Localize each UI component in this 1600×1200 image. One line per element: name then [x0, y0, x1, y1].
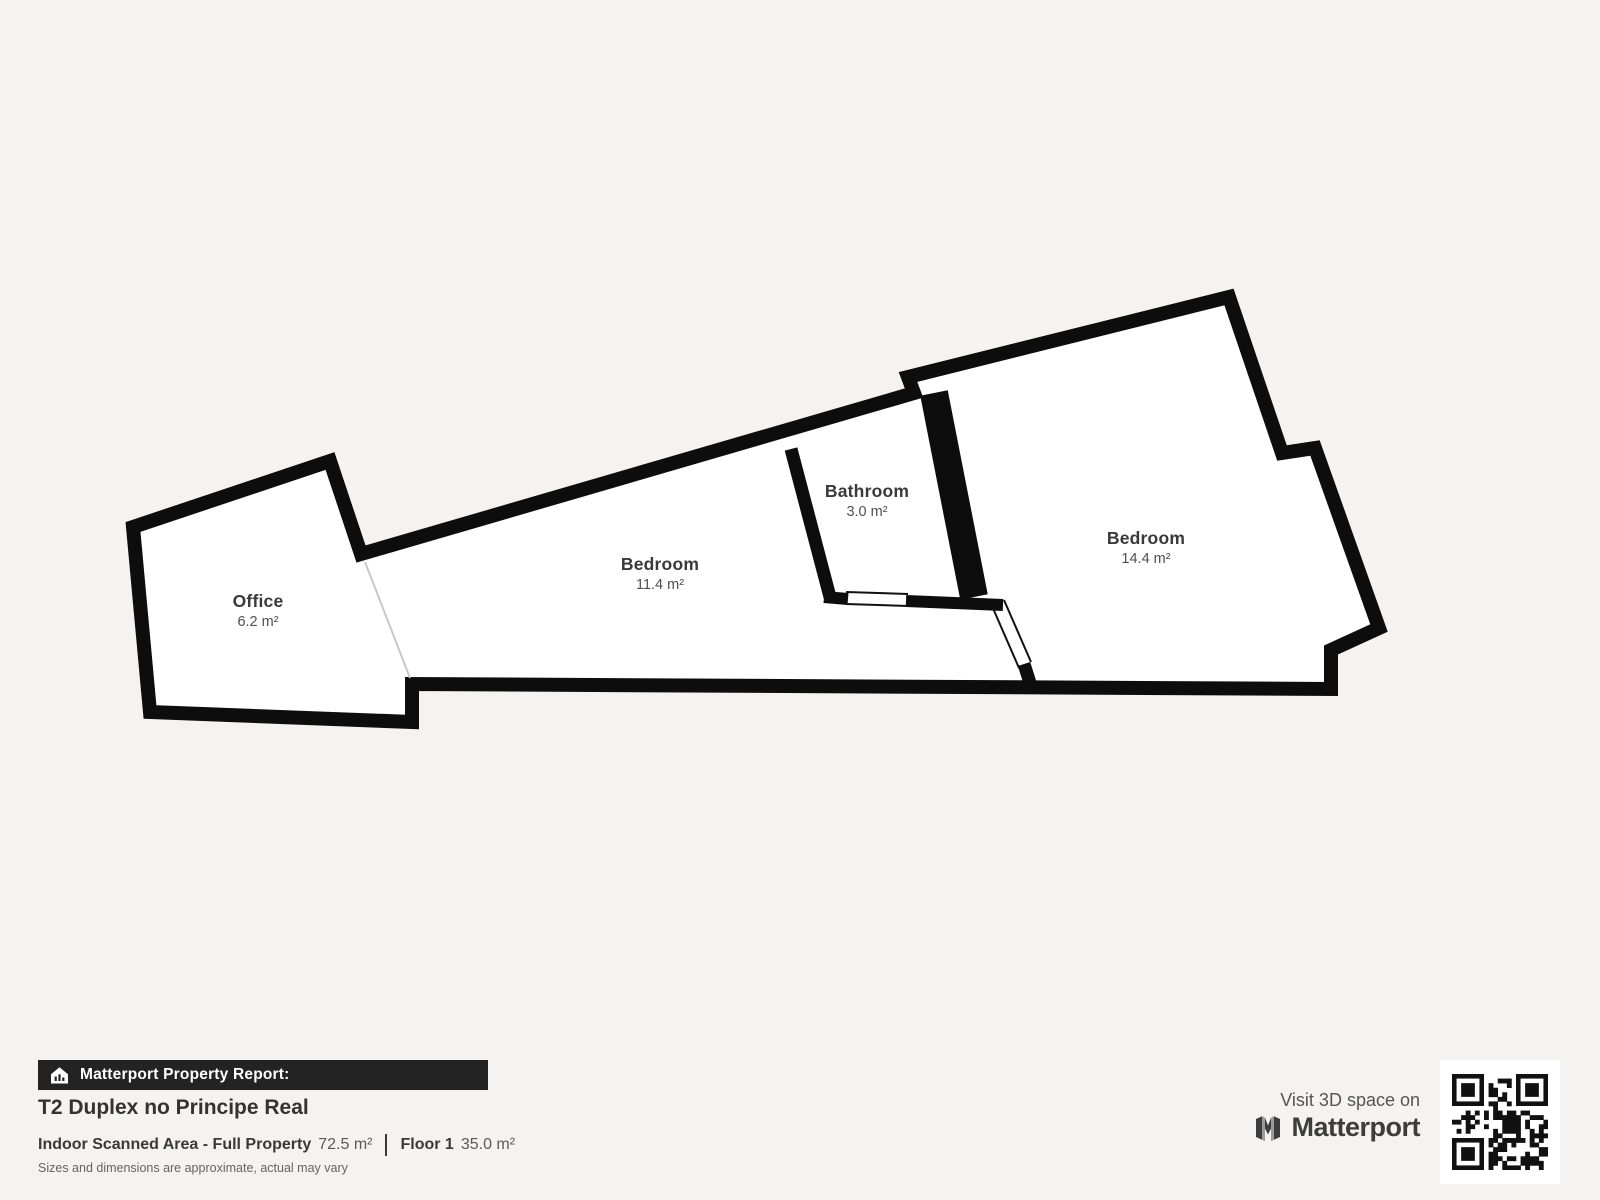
bathroom-bottom-wall-left: [824, 597, 848, 599]
matterport-floorplan-report: { "floorplan": { "rooms": [ { "name": "O…: [0, 0, 1600, 1200]
property-title: T2 Duplex no Principe Real: [38, 1096, 309, 1120]
room-area: 6.2 m²: [233, 614, 284, 631]
room-name: Bathroom: [825, 481, 909, 501]
stats-divider: [385, 1134, 387, 1156]
report-header-bar: Matterport Property Report:: [38, 1060, 488, 1090]
scanned-area-label: Indoor Scanned Area - Full Property: [38, 1136, 311, 1154]
room-name: Bedroom: [621, 554, 699, 574]
floor-label: Floor 1: [400, 1136, 453, 1154]
disclaimer-text: Sizes and dimensions are approximate, ac…: [38, 1161, 348, 1175]
room-label-office: Office 6.2 m²: [233, 591, 284, 631]
room-name: Bedroom: [1107, 528, 1185, 548]
visit-3d-space-text: Visit 3D space on: [1220, 1090, 1420, 1111]
bathroom-bottom-wall-right: [906, 601, 1003, 605]
area-stats-line: Indoor Scanned Area - Full Property 72.5…: [38, 1134, 515, 1156]
scanned-area-value: 72.5 m²: [318, 1136, 372, 1154]
qr-code-pattern: [1452, 1074, 1548, 1170]
room-name: Office: [233, 591, 284, 611]
matterport-wordmark: Matterport: [1292, 1112, 1421, 1143]
room-label-bedroom-2: Bedroom 14.4 m²: [1107, 528, 1185, 568]
matterport-logo-icon: [1253, 1113, 1283, 1143]
report-bar-label: Matterport Property Report:: [80, 1066, 290, 1084]
room-area: 11.4 m²: [621, 577, 699, 594]
room-label-bedroom-1: Bedroom 11.4 m²: [621, 554, 699, 594]
bedroom-divider-wall: [1024, 664, 1031, 686]
matterport-brand: Matterport: [1180, 1112, 1420, 1143]
room-area: 3.0 m²: [825, 504, 909, 521]
floor-value: 35.0 m²: [461, 1136, 515, 1154]
qr-code: [1440, 1060, 1560, 1184]
building-outline: [133, 297, 1379, 722]
house-report-icon: [50, 1066, 69, 1085]
room-label-bathroom: Bathroom 3.0 m²: [825, 481, 909, 521]
room-area: 14.4 m²: [1107, 551, 1185, 568]
